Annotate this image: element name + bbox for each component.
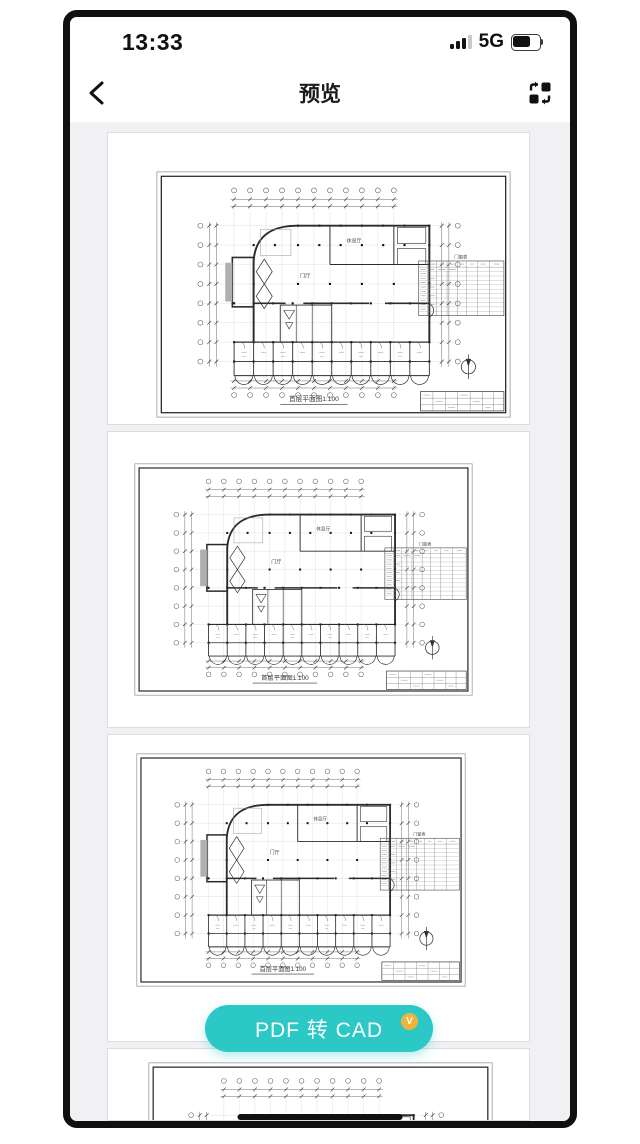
status-bar: 13:33 5G	[70, 17, 570, 64]
pdf-to-cad-label: PDF 转 CAD	[255, 1014, 383, 1044]
convert-button[interactable]	[524, 77, 556, 109]
battery-icon	[511, 34, 544, 50]
nav-bar: 预览	[70, 64, 570, 122]
page-title: 预览	[70, 78, 570, 108]
status-right-cluster: 5G	[450, 31, 544, 53]
clock: 13:33	[122, 29, 183, 56]
screenshot-root: 13:33 5G 预览	[0, 0, 640, 1144]
signal-icon	[450, 35, 472, 49]
vip-badge: V	[401, 1013, 418, 1030]
page-preview-2[interactable]	[107, 431, 530, 728]
page-preview-1[interactable]	[107, 132, 530, 425]
floor-plan-drawing	[156, 171, 511, 418]
floor-plan-drawing	[148, 1062, 493, 1121]
pdf-to-cad-button[interactable]: PDF 转 CAD V	[205, 1005, 433, 1052]
floor-plan-drawing	[134, 463, 473, 696]
network-label: 5G	[479, 31, 504, 53]
pdf-preview-list[interactable]: PDF 转 CAD V	[70, 122, 570, 1121]
page-preview-4[interactable]	[107, 1048, 530, 1121]
floor-plan-drawing	[136, 753, 466, 987]
device-frame: 13:33 5G 预览	[63, 10, 577, 1128]
rotate-squares-icon	[527, 80, 553, 106]
home-indicator	[238, 1114, 403, 1120]
page-preview-3[interactable]	[107, 734, 530, 1042]
